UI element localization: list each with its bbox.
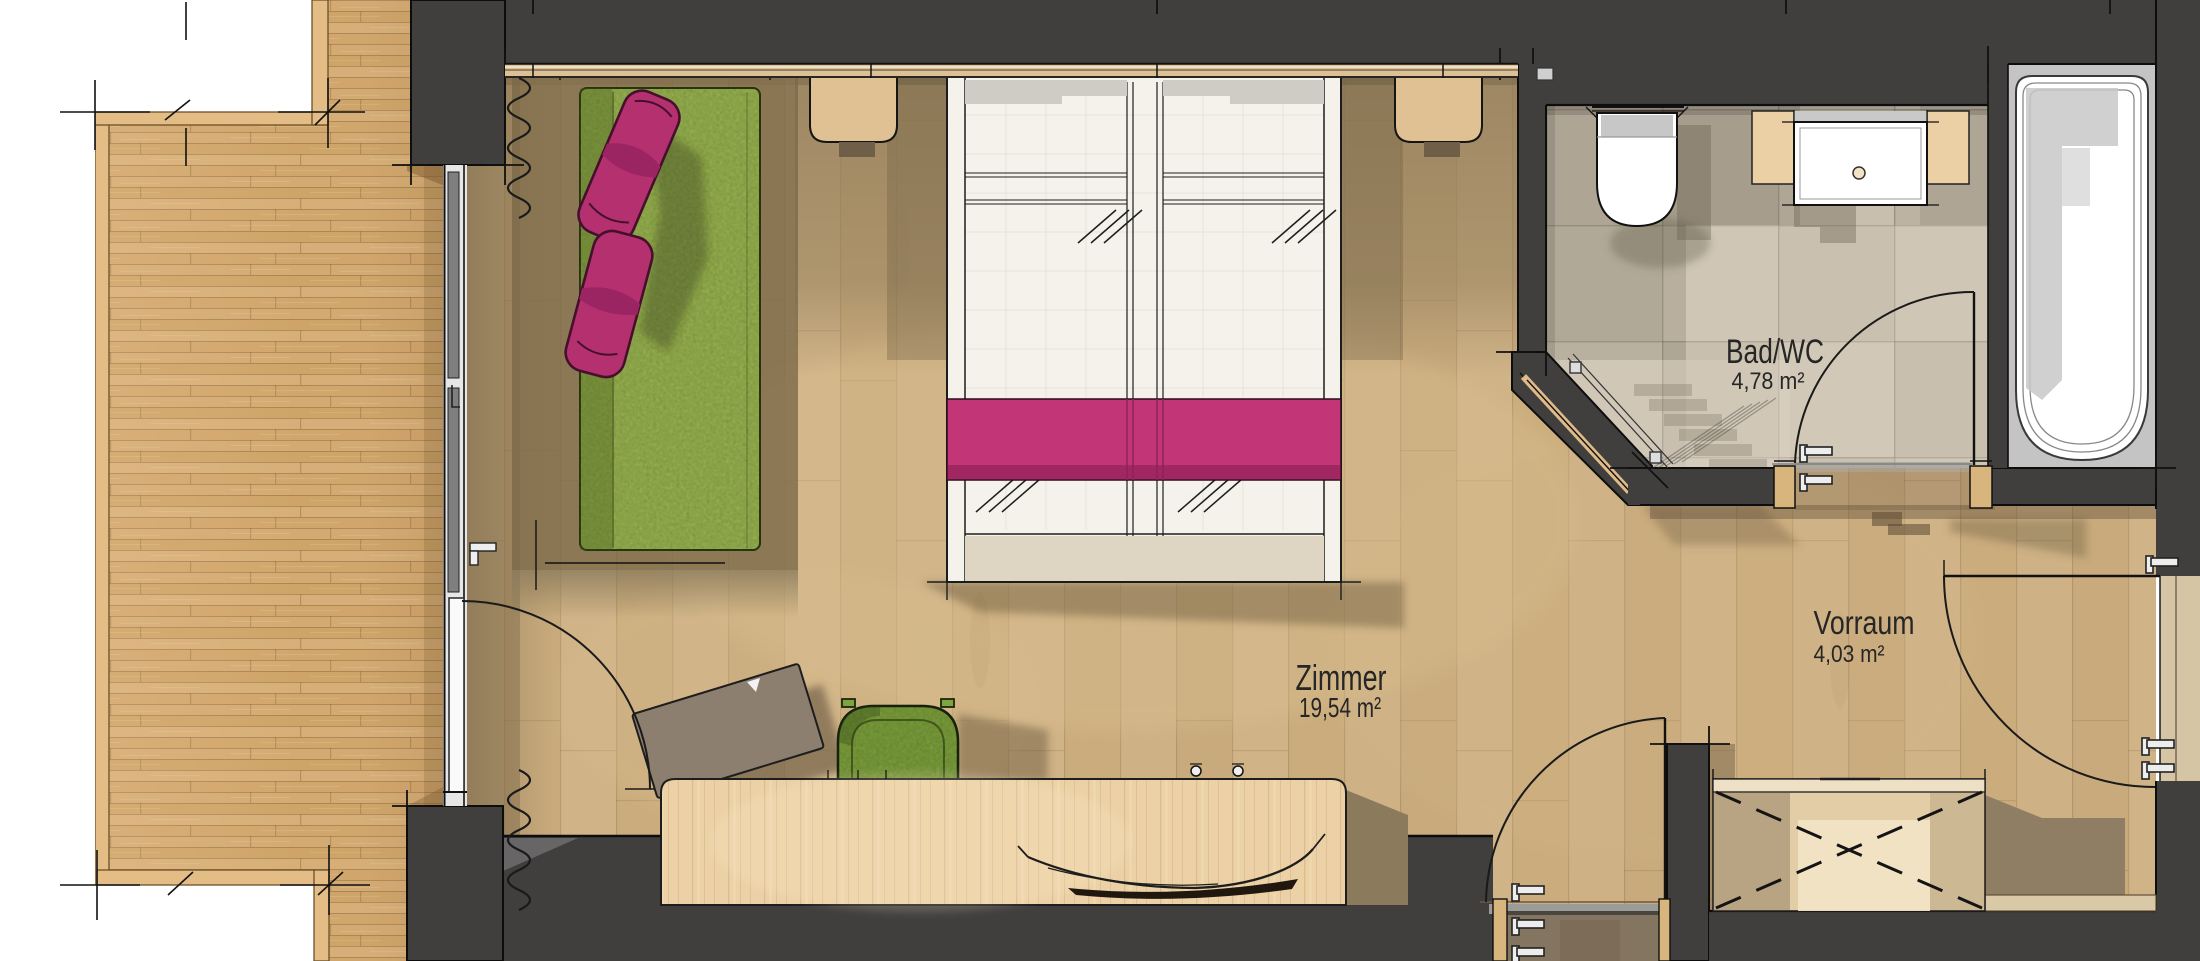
svg-text:4,03 m²: 4,03 m²	[1814, 641, 1885, 668]
svg-text:4,78 m²: 4,78 m²	[1732, 368, 1805, 395]
svg-text:19,54 m²: 19,54 m²	[1299, 692, 1381, 723]
svg-text:Bad/WC: Bad/WC	[1726, 333, 1824, 371]
svg-text:Vorraum: Vorraum	[1814, 604, 1915, 641]
